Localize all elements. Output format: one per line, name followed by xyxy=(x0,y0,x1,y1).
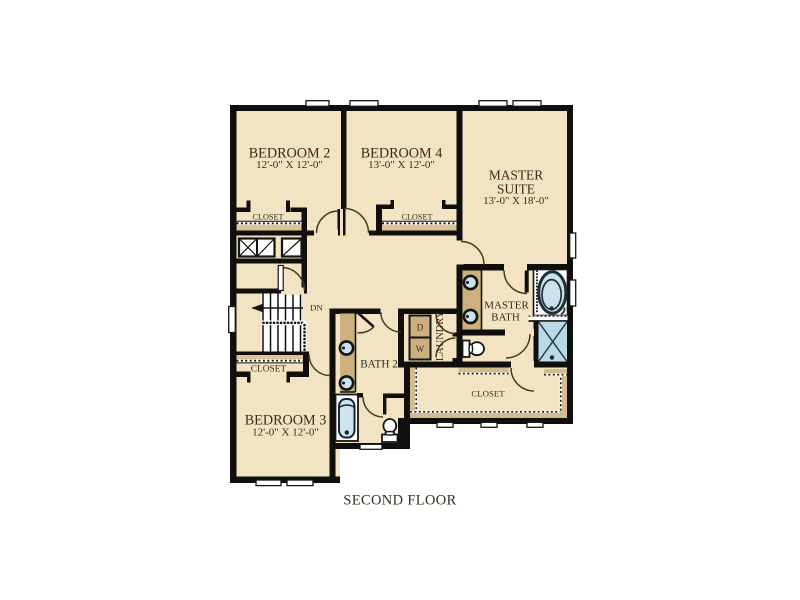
svg-text:MASTER: MASTER xyxy=(484,300,529,312)
svg-text:CLOSET: CLOSET xyxy=(251,365,287,375)
svg-text:W: W xyxy=(416,344,425,354)
svg-text:13'-0" X 18'-0": 13'-0" X 18'-0" xyxy=(483,195,548,207)
svg-text:12'-0" X 12'-0": 12'-0" X 12'-0" xyxy=(252,427,319,439)
svg-text:D: D xyxy=(417,323,424,333)
svg-text:12'-0" X 12'-0": 12'-0" X 12'-0" xyxy=(256,159,323,171)
svg-text:BATH 2: BATH 2 xyxy=(360,359,398,371)
svg-text:CLOSET: CLOSET xyxy=(402,213,433,222)
svg-text:DN: DN xyxy=(310,303,323,313)
svg-text:CLOSET: CLOSET xyxy=(471,389,505,399)
svg-text:MASTER: MASTER xyxy=(489,168,543,183)
svg-text:13'-0" X 12'-0": 13'-0" X 12'-0" xyxy=(368,159,435,171)
svg-text:CLOSET: CLOSET xyxy=(253,213,284,222)
svg-text:LAUNDRY: LAUNDRY xyxy=(435,310,446,361)
svg-text:SECOND FLOOR: SECOND FLOOR xyxy=(343,493,456,509)
svg-text:BATH: BATH xyxy=(491,312,520,324)
